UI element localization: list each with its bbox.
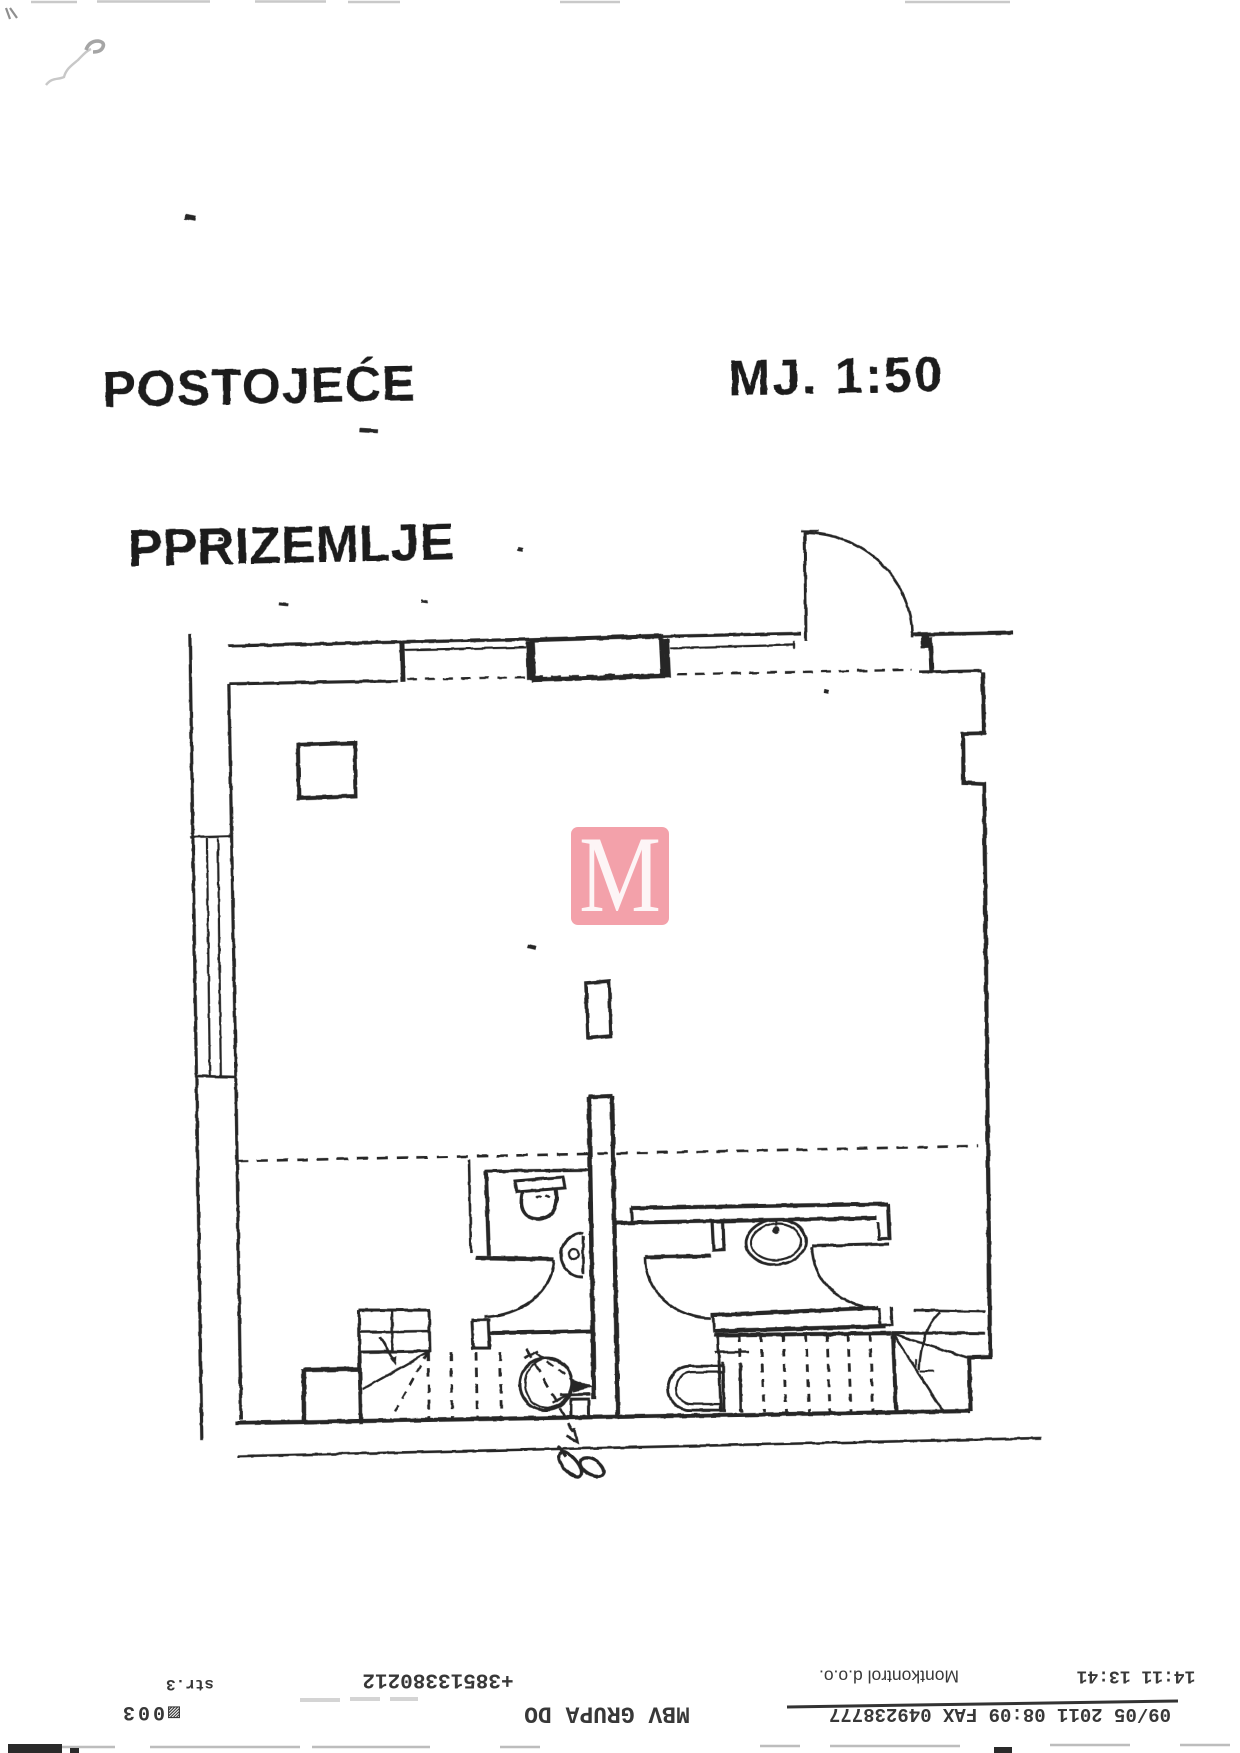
svg-text:str.3: str.3 xyxy=(166,1675,214,1693)
svg-text:09/05 2011 08:09 FAX 049238777: 09/05 2011 08:09 FAX 049238777 xyxy=(829,1703,1171,1725)
svg-text:Montkontrol d.o.o.: Montkontrol d.o.o. xyxy=(819,1667,959,1687)
svg-text:+38513380212: +38513380212 xyxy=(362,1667,513,1690)
svg-text:M: M xyxy=(579,814,661,935)
svg-text:MBV GRUPA DO: MBV GRUPA DO xyxy=(524,1701,690,1727)
svg-text:▨003: ▨003 xyxy=(120,1700,180,1723)
svg-text:PPRIZEMLJE: PPRIZEMLJE xyxy=(127,513,454,578)
svg-text:MJ. 1:50: MJ. 1:50 xyxy=(728,346,944,407)
svg-text:POSTOJEĆE: POSTOJEĆE xyxy=(102,355,416,418)
svg-text:14:11 13:41: 14:11 13:41 xyxy=(1076,1666,1195,1686)
